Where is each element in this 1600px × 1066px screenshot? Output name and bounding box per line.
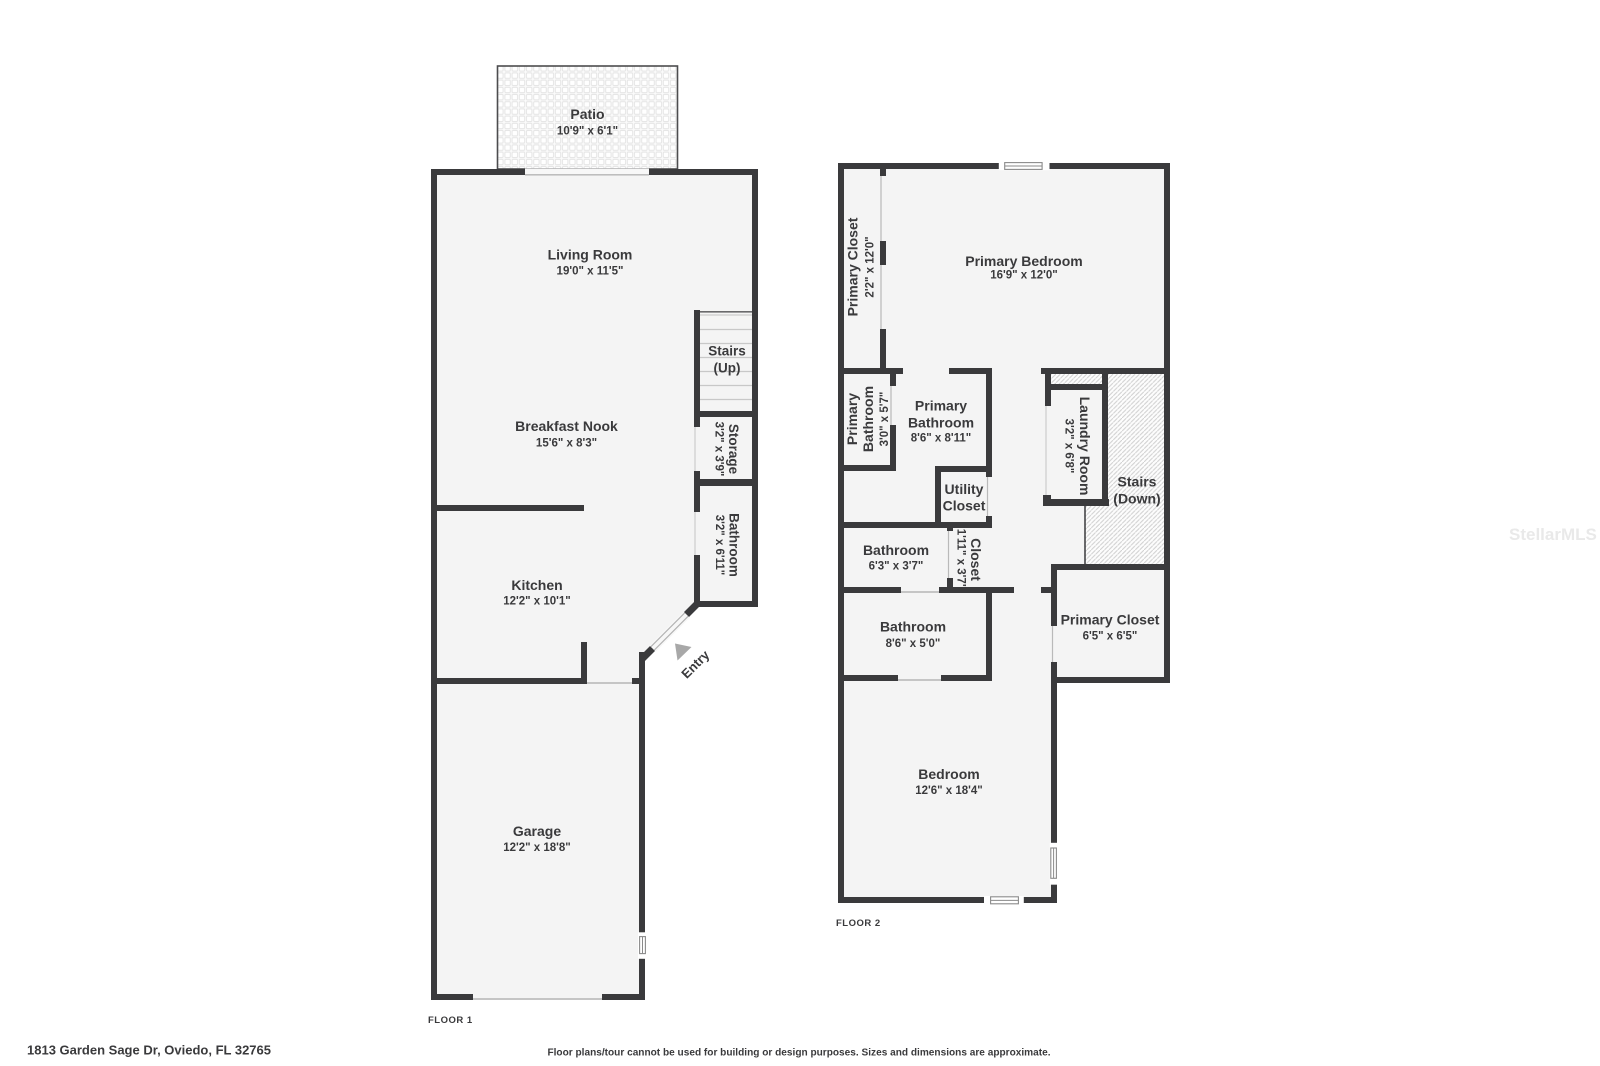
svg-text:3'0" x 5'7": 3'0" x 5'7" [879,392,891,447]
svg-text:3'2" x 3'9": 3'2" x 3'9" [713,422,725,477]
svg-text:Kitchen: Kitchen [511,577,562,593]
svg-text:Stairs: Stairs [708,344,746,359]
svg-text:19'0" x 11'5": 19'0" x 11'5" [557,266,624,278]
svg-text:Bedroom: Bedroom [918,766,979,782]
svg-text:StellarMLS: StellarMLS [1509,525,1597,544]
svg-text:1'11" x 3'7": 1'11" x 3'7" [955,529,967,590]
svg-text:Garage: Garage [513,823,561,839]
svg-text:FLOOR 1: FLOOR 1 [428,1015,473,1026]
svg-text:3'2" x 6'11": 3'2" x 6'11" [713,515,725,576]
svg-text:Bathroom: Bathroom [880,619,946,635]
svg-text:12'2" x 10'1": 12'2" x 10'1" [503,596,571,608]
svg-text:Primary: Primary [844,393,860,445]
svg-text:Primary Bedroom: Primary Bedroom [965,253,1082,269]
svg-text:8'6" x 5'0": 8'6" x 5'0" [886,638,941,650]
svg-text:15'6" x 8'3": 15'6" x 8'3" [536,438,597,450]
svg-text:Stairs: Stairs [1118,474,1157,490]
svg-text:Patio: Patio [570,106,604,122]
svg-text:Floor plans/tour cannot be use: Floor plans/tour cannot be used for buil… [547,1048,1050,1059]
svg-text:2'2" x 12'0": 2'2" x 12'0" [865,236,877,297]
svg-text:Closet: Closet [943,498,986,514]
svg-text:Bathroom: Bathroom [908,415,974,431]
svg-text:Primary Closet: Primary Closet [1061,612,1160,628]
svg-text:Storage: Storage [726,424,741,475]
svg-text:Primary Closet: Primary Closet [845,217,861,316]
svg-text:6'3" x 3'7": 6'3" x 3'7" [869,561,924,573]
svg-text:(Up): (Up) [714,361,741,376]
svg-text:Living Room: Living Room [548,247,633,263]
svg-text:10'9" x 6'1": 10'9" x 6'1" [557,126,618,138]
svg-text:Bathroom: Bathroom [727,513,742,577]
svg-text:1813 Garden Sage Dr, Oviedo, F: 1813 Garden Sage Dr, Oviedo, FL 32765 [27,1043,271,1058]
svg-text:12'6" x 18'4": 12'6" x 18'4" [915,785,983,797]
svg-text:Primary: Primary [915,398,967,414]
svg-text:Bathroom: Bathroom [863,542,929,558]
svg-text:6'5" x 6'5": 6'5" x 6'5" [1083,631,1138,643]
svg-text:8'6" x 8'11": 8'6" x 8'11" [911,433,972,445]
svg-text:FLOOR 2: FLOOR 2 [836,918,881,929]
svg-text:Bathroom: Bathroom [860,386,876,452]
svg-text:Laundry Room: Laundry Room [1077,397,1093,496]
svg-text:Closet: Closet [968,538,984,581]
svg-text:3'2" x 6'8": 3'2" x 6'8" [1063,419,1075,474]
svg-text:(Down): (Down) [1113,491,1160,507]
svg-text:Breakfast Nook: Breakfast Nook [515,418,618,434]
svg-text:12'2" x 18'8": 12'2" x 18'8" [503,842,571,854]
svg-text:Utility: Utility [945,481,984,497]
svg-text:16'9" x 12'0": 16'9" x 12'0" [990,270,1058,282]
